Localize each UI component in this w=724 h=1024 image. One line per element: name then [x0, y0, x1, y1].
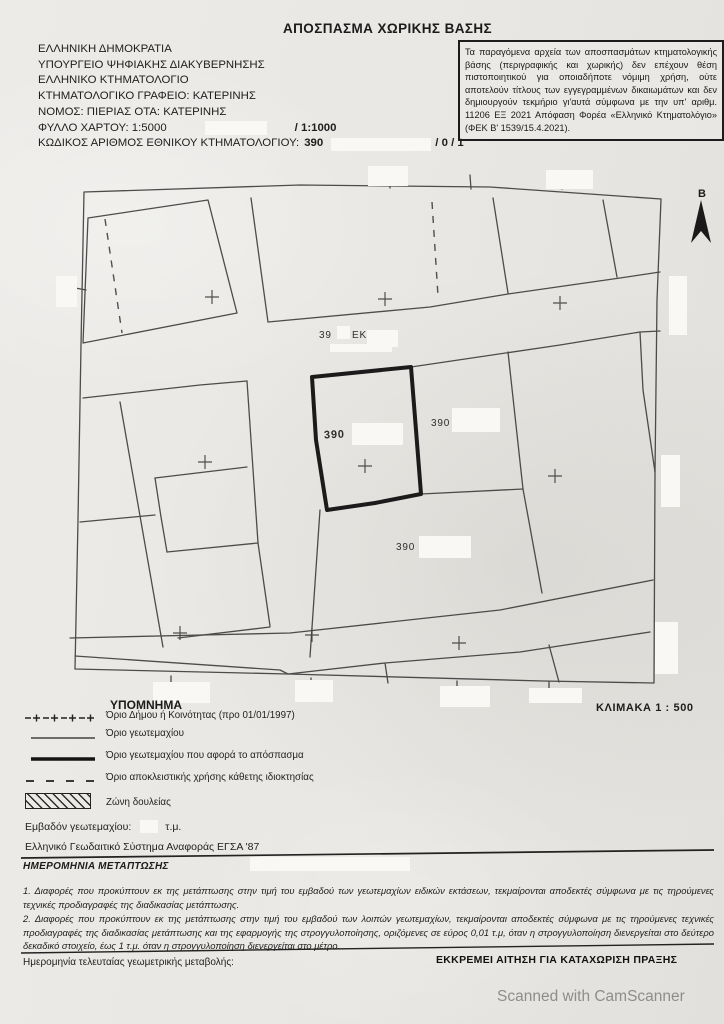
migration-note-1: 1. Διαφορές που προκύπτουν εκ της μετάπτ… [23, 884, 714, 911]
redaction-box [440, 686, 490, 707]
legend-item-label: Ζώνη δουλείας [106, 797, 171, 808]
legend-item: Όριο αποκλειστικής χρήσης κάθετης ιδιοκτ… [0, 771, 430, 789]
exclusive-use-boundary-symbol [25, 773, 95, 791]
redaction-box [655, 622, 678, 674]
legend-item: Ζώνη δουλείας [0, 793, 430, 811]
parcel-label-390-mid: 390 [431, 418, 450, 429]
easement-zone-symbol [25, 793, 91, 814]
camscanner-watermark: Scanned with CamScanner [497, 988, 685, 1006]
migration-heading: ΗΜΕΡΟΜΗΝΙΑ ΜΕΤΑΠΤΩΣΗΣ [23, 861, 169, 872]
subject-parcel-boundary-symbol [30, 751, 96, 769]
road-boundary [411, 331, 660, 367]
redaction-box [661, 455, 680, 507]
redaction-box [419, 536, 471, 558]
last-geometric-change-label: Ημερομηνία τελευταίας γεωμετρικής μεταβο… [23, 957, 234, 968]
road-boundary [70, 580, 653, 638]
legend-item: Όριο γεωτεμαχίου που αφορά το απόσπασμα [0, 749, 430, 767]
parcel-area-row: Εμβαδόν γεωτεμαχίου: τ.μ. [25, 820, 181, 833]
parcel-boundary [493, 198, 508, 293]
parcel-boundary [247, 381, 270, 626]
redaction-box [56, 276, 77, 307]
redaction-box [330, 344, 392, 352]
legend-item-label: Όριο γεωτεμαχίου [106, 728, 184, 739]
parcel-boundary [167, 543, 258, 552]
parcel-boundary [178, 627, 270, 638]
parcel-boundary [508, 352, 542, 593]
redaction-box [368, 166, 408, 186]
redaction-box [452, 408, 500, 432]
parcel-boundary [603, 200, 617, 277]
parcel-label-390-subject: 390 [324, 428, 345, 441]
redaction-box [546, 170, 593, 189]
exclusive-use-dashed-lines [105, 202, 438, 333]
parcel-boundary [83, 200, 237, 343]
redaction-box [250, 857, 410, 871]
legend-item-label: Όριο αποκλειστικής χρήσης κάθετης ιδιοκτ… [106, 772, 314, 783]
parcel-boundary [120, 402, 163, 647]
legend-item: Όριο Δήμου ή Κοινότητας (προ 01/01/1997) [0, 709, 430, 727]
parcel-label-390-lower: 390 [396, 542, 415, 553]
parcel-boundary [549, 645, 559, 682]
parcel-area-unit: τ.μ. [165, 821, 181, 833]
parcel-label-ek: ΕΚ [352, 330, 367, 341]
parcel-boundary [155, 467, 247, 478]
redaction-box [529, 688, 582, 703]
road-boundary [268, 272, 660, 322]
redaction-box [669, 276, 687, 335]
legend-item: Όριο γεωτεμαχίου [0, 727, 430, 745]
redaction-box [140, 820, 158, 833]
parcel-boundary [80, 515, 155, 522]
parcel-boundary [155, 478, 167, 552]
redaction-box [352, 423, 403, 445]
parcel-boundary [251, 198, 268, 322]
redaction-box [295, 680, 333, 702]
redaction-box [337, 326, 350, 339]
map-scale-label: ΚΛΙΜΑΚΑ 1 : 500 [596, 702, 694, 714]
legend-item-label: Όριο Δήμου ή Κοινότητας (προ 01/01/1997) [106, 710, 295, 721]
parcel-label-39: 39 [319, 330, 332, 341]
migration-note-2: 2. Διαφορές που προκύπτουν εκ της μετάπτ… [23, 912, 714, 953]
north-label: Β [698, 188, 706, 200]
parcel-boundary [385, 663, 388, 683]
geodetic-datum: Ελληνικό Γεωδαιτικό Σύστημα Αναφοράς ΕΓΣ… [25, 841, 259, 853]
north-arrow-icon: Β [691, 188, 711, 243]
legend-item-label: Όριο γεωτεμαχίου που αφορά το απόσπασμα [106, 750, 304, 761]
parcel-boundary [640, 332, 655, 472]
parcel-area-label: Εμβαδόν γεωτεμαχίου: [25, 821, 131, 833]
scanned-page: ΑΠΟΣΠΑΣΜΑ ΧΩΡΙΚΗΣ ΒΑΣΗΣ ΕΛΛΗΝΙΚΗ ΔΗΜΟΚΡΑ… [0, 0, 724, 1024]
parcel-boundary [83, 381, 247, 398]
parcel-boundary [421, 489, 523, 494]
parcel-boundary-symbol [30, 730, 96, 748]
pending-registration-note: ΕΚΚΡΕΜΕΙ ΑΙΤΗΣΗ ΓΙΑ ΚΑΤΑΧΩΡΙΣΗ ΠΡΑΞΗΣ [436, 954, 677, 966]
road-boundary [288, 632, 650, 674]
